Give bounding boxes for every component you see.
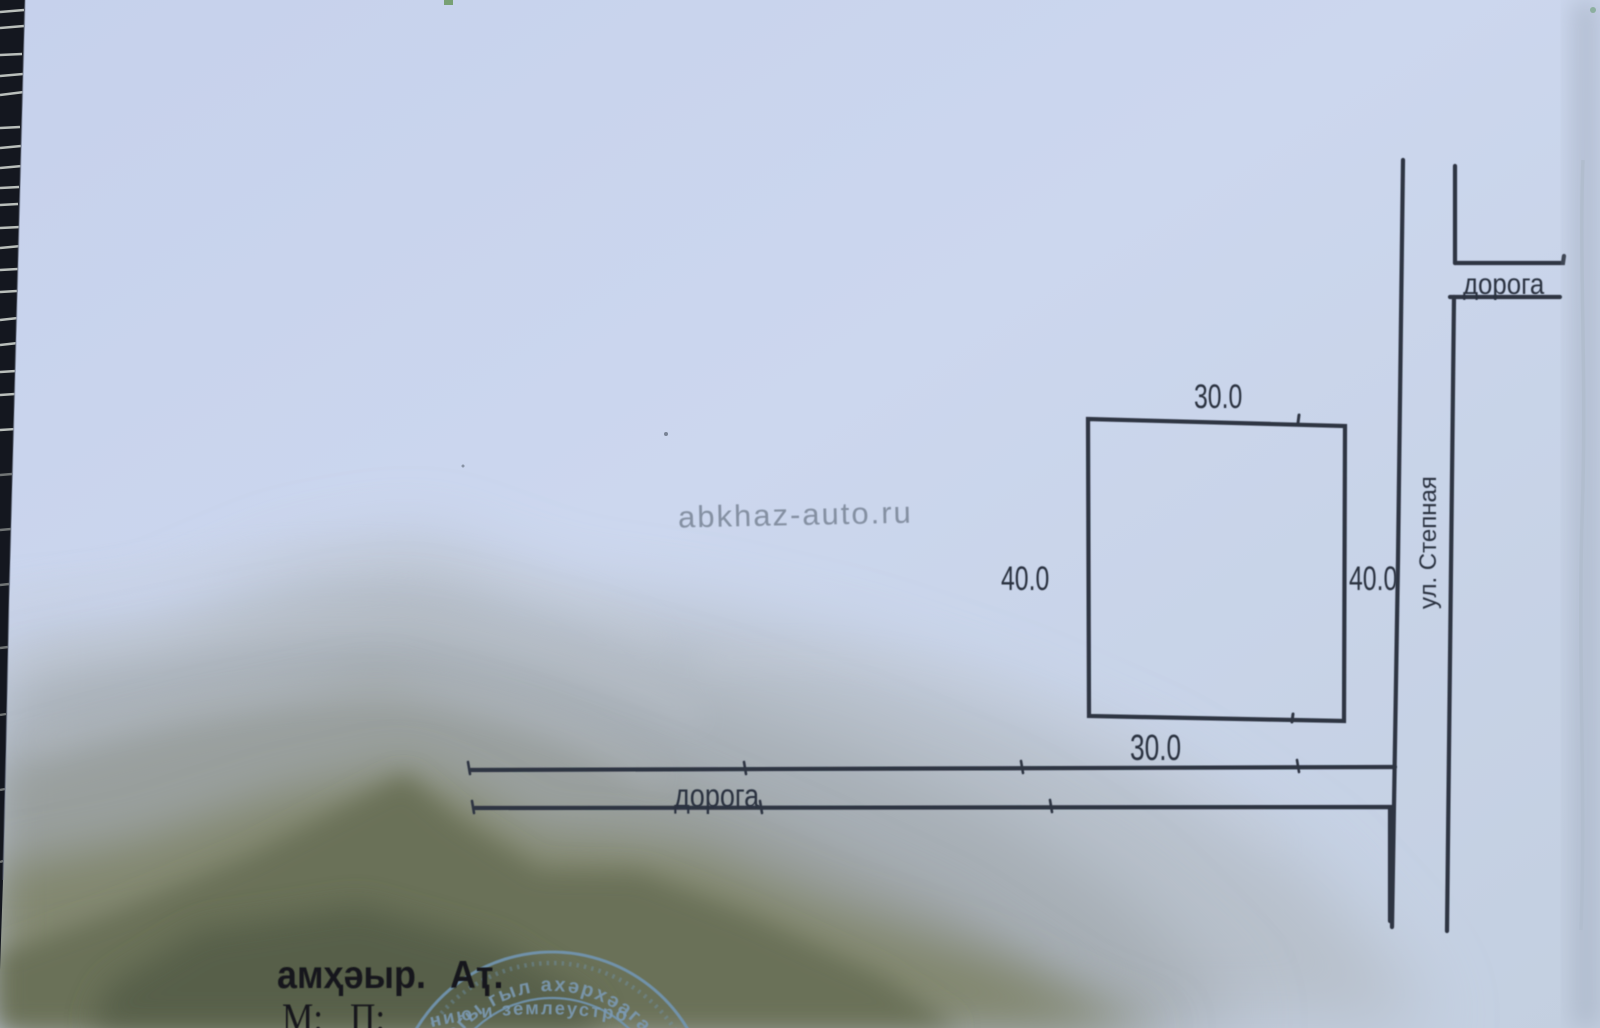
svg-text:abkhaz-auto.ru: abkhaz-auto.ru	[678, 495, 913, 535]
svg-text:дорога: дорога	[1463, 267, 1545, 300]
svg-text:П:: П:	[350, 996, 385, 1028]
svg-text:30.0: 30.0	[1194, 378, 1242, 416]
svg-text:40.0: 40.0	[1349, 560, 1397, 598]
svg-text:М:: М:	[282, 996, 323, 1028]
svg-text:дорога: дорога	[674, 779, 759, 815]
svg-text:амҳәыр.: амҳәыр.	[277, 953, 426, 997]
svg-text:ул. Степная: ул. Степная	[1415, 476, 1442, 609]
svg-text:Аҭ.: Аҭ.	[450, 953, 503, 997]
svg-text:30.0: 30.0	[1130, 727, 1181, 768]
svg-text:40.0: 40.0	[1001, 560, 1049, 598]
